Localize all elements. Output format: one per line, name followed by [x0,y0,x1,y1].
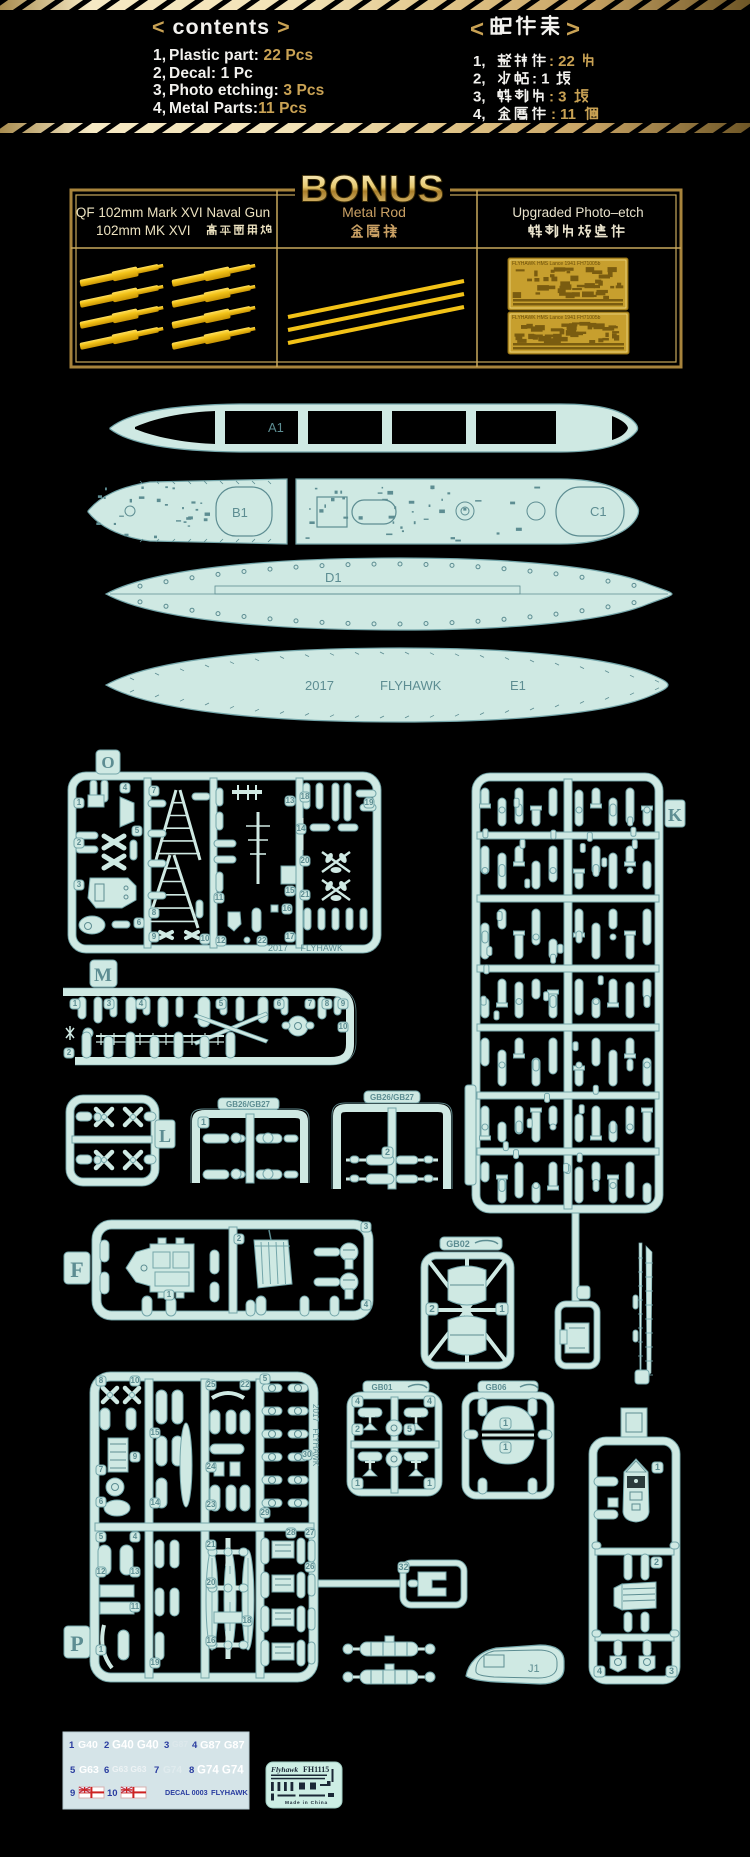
svg-text:G87 G87: G87 G87 [200,1740,245,1752]
svg-text:2: 2 [104,1740,109,1751]
svg-text:3,: 3, [473,88,488,105]
svg-text:: 22: : 22 [549,53,575,70]
svg-text:DECAL 0003: DECAL 0003 [165,1788,208,1797]
svg-text:F: F [70,1257,83,1282]
svg-text:21: 21 [301,890,310,899]
svg-text:3: 3 [364,1222,369,1231]
svg-text:7: 7 [152,786,157,795]
svg-text:5: 5 [70,1765,76,1776]
svg-text:10: 10 [131,1376,140,1385]
svg-text:19: 19 [151,1658,160,1667]
svg-text:1: 1 [503,1442,508,1452]
svg-text:Metal Rod: Metal Rod [342,204,406,220]
svg-text:G40: G40 [78,1739,98,1751]
svg-text:12: 12 [97,1567,106,1576]
svg-text:22: 22 [241,1380,250,1389]
svg-text:1,: 1, [473,53,488,70]
svg-text:1: 1 [99,1645,104,1654]
svg-text:1: 1 [69,1740,75,1751]
svg-text:11: 11 [215,893,224,902]
svg-text:2017 FLYHAWK: 2017 FLYHAWK [268,943,343,953]
svg-text:2: 2 [355,1424,360,1434]
svg-text:G87: G87 [172,1739,188,1749]
svg-text:7: 7 [154,1765,159,1776]
svg-text:K: K [668,805,682,825]
svg-text:5: 5 [407,1424,412,1434]
svg-text:1: 1 [167,1290,172,1299]
svg-text:>: > [566,16,580,43]
svg-text:: 1: : 1 [532,71,550,88]
svg-text:3: 3 [164,1740,169,1751]
svg-text:17: 17 [286,932,295,941]
svg-text:G74 G74: G74 G74 [197,1765,244,1777]
svg-text:32: 32 [398,1562,408,1572]
svg-text:27: 27 [306,1528,315,1537]
svg-text:20: 20 [301,856,310,865]
svg-text:10: 10 [201,934,210,943]
svg-text:2: 2 [77,838,82,847]
svg-text:2017: 2017 [305,678,334,693]
svg-text:18: 18 [301,792,310,801]
svg-text:9: 9 [341,999,346,1008]
svg-text:7: 7 [308,999,313,1008]
svg-text:4,: 4, [473,106,488,123]
svg-text:8: 8 [189,1765,194,1776]
svg-text:9: 9 [152,932,157,941]
svg-text:Flyhawk: Flyhawk [271,1765,298,1774]
svg-text:B1: B1 [232,505,248,520]
svg-text:16: 16 [283,904,292,913]
svg-text:1: 1 [503,1418,508,1428]
svg-text:8: 8 [99,1376,104,1385]
svg-text:G63: G63 [79,1764,99,1776]
svg-text:1: 1 [655,1462,660,1472]
svg-text:4: 4 [364,1300,369,1309]
svg-text:10: 10 [339,1022,348,1031]
svg-text:2,: 2, [473,71,488,88]
svg-text:L: L [159,1126,171,1146]
svg-text:18: 18 [243,1616,252,1625]
svg-text:8: 8 [152,908,157,917]
svg-text:15: 15 [151,1428,160,1437]
svg-text:GB06: GB06 [486,1383,507,1392]
svg-text:1: 1 [73,999,78,1008]
svg-text:4: 4 [427,1396,432,1406]
svg-text:10: 10 [107,1788,118,1799]
svg-text:GB02: GB02 [446,1239,470,1249]
svg-text:29: 29 [261,1508,270,1517]
svg-text:15: 15 [286,886,295,895]
svg-text:2: 2 [654,1557,659,1567]
svg-text:9: 9 [70,1788,75,1799]
svg-text:4: 4 [597,1666,602,1676]
svg-text:Made in China: Made in China [285,1800,328,1806]
svg-text:1: 1 [77,798,82,807]
svg-text:3: 3 [77,880,82,889]
svg-text:2: 2 [429,1304,435,1315]
svg-text:FLYHAWK: FLYHAWK [211,1788,248,1797]
svg-text:: 3: : 3 [549,88,567,105]
svg-text:6: 6 [104,1765,109,1776]
svg-text:11: 11 [131,1602,140,1611]
svg-text:2: 2 [385,1147,390,1157]
svg-text:7: 7 [99,1465,104,1474]
svg-text:30: 30 [303,1450,312,1459]
svg-text:23: 23 [207,1500,216,1509]
svg-text:12: 12 [217,936,226,945]
svg-text:G63 G63: G63 G63 [112,1764,147,1774]
svg-text:<: < [470,16,484,43]
svg-text:5: 5 [263,1374,268,1383]
svg-text:FLYHAWK: FLYHAWK [380,678,442,693]
svg-text:20: 20 [207,1578,216,1587]
svg-text:G74: G74 [163,1765,182,1776]
svg-text:GB26/GB27: GB26/GB27 [226,1100,271,1109]
svg-text:QF 102mm Mark XVI Naval Gun: QF 102mm Mark XVI Naval Gun [76,205,270,220]
svg-text:21: 21 [207,1540,216,1549]
svg-text:9: 9 [133,1452,138,1461]
svg-text:GB01: GB01 [372,1383,393,1392]
svg-text:G40 G40: G40 G40 [112,1740,159,1752]
svg-text:19: 19 [365,798,374,807]
svg-text:102mm MK XVI: 102mm MK XVI [96,223,191,238]
svg-text:24: 24 [207,1462,216,1471]
svg-text:E1: E1 [510,678,526,693]
svg-text:D1: D1 [325,570,342,585]
svg-text:3: 3 [107,999,112,1008]
svg-text:26: 26 [306,1562,315,1571]
svg-text:FLYHAWK HMS Lance 1941 FH: FLYHAWK HMS Lance 1941 FH71005b [512,261,601,267]
svg-text:M: M [94,965,112,986]
svg-text:4: 4 [139,999,144,1008]
svg-text:6: 6 [99,1497,104,1506]
svg-text:14: 14 [151,1498,160,1507]
svg-text:22: 22 [258,936,267,945]
svg-text:Upgraded Photo–etch: Upgraded Photo–etch [512,205,643,220]
svg-text:4: 4 [355,1396,360,1406]
svg-text:14: 14 [297,824,306,833]
svg-text:A1: A1 [268,420,284,435]
svg-text:P: P [70,1631,83,1656]
svg-text:GB26/GB27: GB26/GB27 [370,1093,415,1102]
svg-text:6: 6 [137,918,142,927]
svg-text:28: 28 [287,1528,296,1537]
svg-text:8: 8 [325,999,330,1008]
svg-text:FLYHAWK HMS Lance 1941 FH: FLYHAWK HMS Lance 1941 FH71005b [512,315,601,321]
svg-text:: 11: : 11 [551,106,576,123]
svg-text:13: 13 [286,796,295,805]
svg-text:C1: C1 [590,504,607,519]
svg-text:1: 1 [201,1117,206,1127]
svg-text:5: 5 [135,826,140,835]
svg-text:4: 4 [192,1740,198,1751]
svg-text:FH1115: FH1115 [303,1765,329,1774]
svg-text:3: 3 [669,1666,674,1676]
svg-text:4: 4 [133,1532,138,1541]
svg-text:2: 2 [67,1048,72,1057]
svg-text:5: 5 [99,1532,104,1541]
svg-text:1: 1 [499,1304,505,1315]
svg-text:1: 1 [427,1478,432,1488]
svg-text:4: 4 [123,783,128,792]
svg-text:J1: J1 [528,1663,540,1675]
svg-text:13: 13 [131,1567,140,1576]
svg-text:16: 16 [207,1636,216,1645]
svg-text:6: 6 [277,999,282,1008]
svg-text:1: 1 [355,1478,360,1488]
svg-text:5: 5 [219,999,224,1008]
svg-text:O: O [101,753,114,772]
svg-text:25: 25 [207,1380,216,1389]
svg-text:2: 2 [237,1234,242,1243]
